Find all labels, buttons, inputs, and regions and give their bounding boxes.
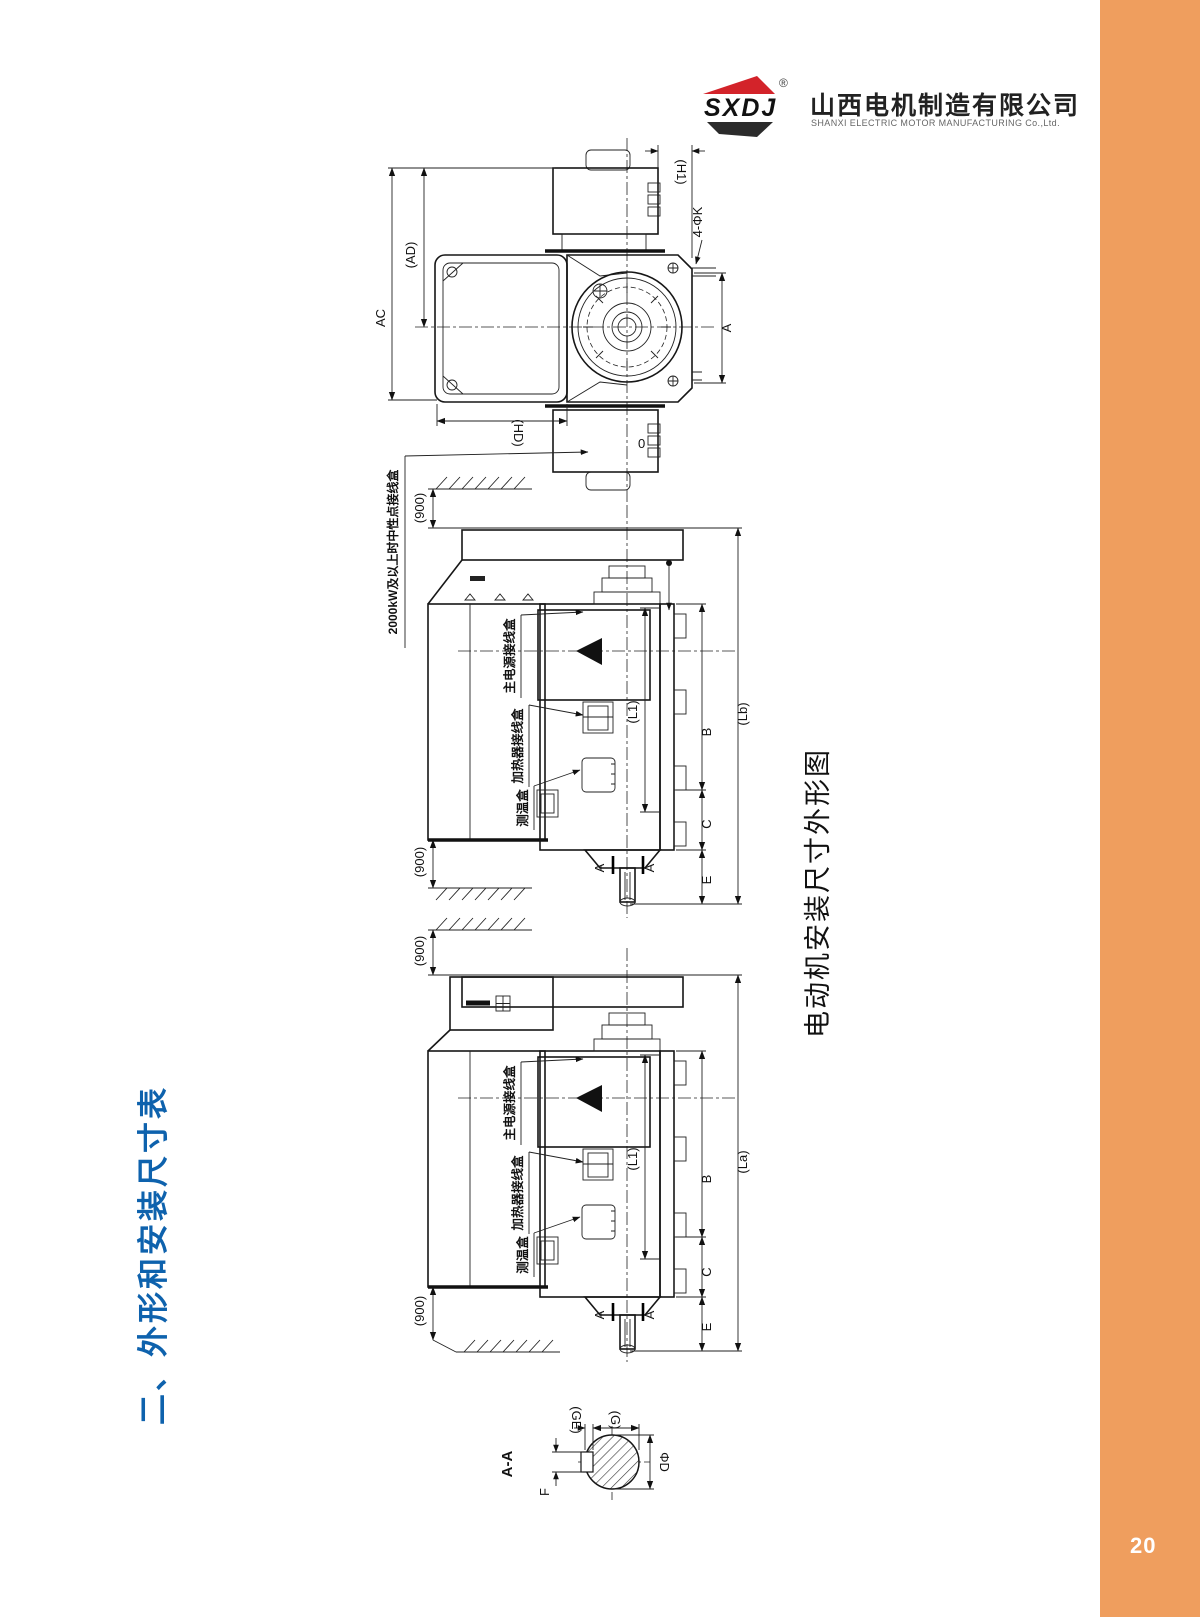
dim-f-label: F — [537, 1488, 552, 1496]
label-main-terminal-box: 主电源接线盒 — [502, 618, 517, 694]
dim-l1-label: (L1) — [625, 700, 640, 723]
dim-900-bottom-label: (900) — [412, 847, 427, 877]
dim-h1-label: (H1) — [674, 159, 689, 184]
dim-a-label: A — [719, 323, 734, 332]
section-cut-mark-a: A — [592, 863, 607, 872]
dim-zero-label: 0 — [638, 436, 645, 451]
side-view-lb-drawing: (900) 2000kW及以上时中性点接线盒 主电源接线盒 — [385, 452, 750, 918]
end-view-drawing: 0 AC (AD) (HD) (H1) 4-ΦK A — [373, 138, 734, 502]
label-heater-terminal-box: 加热器接线盒 — [510, 708, 525, 785]
dim-900-bottom-label: (900) — [412, 1296, 427, 1326]
dim-la-label: (La) — [735, 1150, 750, 1173]
side-view-la-drawing: (900) 主电源接线盒 — [412, 918, 750, 1362]
label-main-terminal-box: 主电源接线盒 — [502, 1065, 517, 1141]
section-cut-mark-a: A — [642, 863, 657, 872]
dim-900-top-label: (900) — [412, 493, 427, 523]
dim-b-label: B — [699, 728, 714, 737]
dim-ad-label: (AD) — [403, 242, 418, 269]
dim-c-label: C — [699, 819, 714, 828]
accent-sidebar — [1100, 0, 1200, 1617]
dim-c-label: C — [699, 1267, 714, 1276]
section-cut-mark-a: A — [592, 1310, 607, 1319]
dim-l1-label: (L1) — [625, 1147, 640, 1170]
dim-phi-d-label: ΦD — [657, 1452, 672, 1472]
dim-lb-label: (Lb) — [735, 702, 750, 725]
note-neutral-terminal-box: 2000kW及以上时中性点接线盒 — [385, 469, 400, 635]
label-temp-box: 测温盒 — [515, 1236, 530, 1274]
section-cut-mark-a: A — [642, 1310, 657, 1319]
label-heater-terminal-box: 加热器接线盒 — [510, 1155, 525, 1232]
section-aa-drawing: A-A (GE) (G) ΦD F — [499, 1406, 672, 1500]
label-temp-box: 测温盒 — [515, 789, 530, 827]
technical-drawing: 0 AC (AD) (HD) (H1) 4-ΦK A — [0, 0, 1100, 1617]
dim-e-label: E — [699, 1322, 714, 1331]
dim-ac-label: AC — [373, 309, 388, 327]
page-number: 20 — [1130, 1533, 1156, 1559]
dim-hd-label: (HD) — [511, 419, 526, 446]
dim-900-top-label: (900) — [412, 936, 427, 966]
dim-g-label: (G) — [608, 1411, 623, 1430]
dim-b-label: B — [699, 1175, 714, 1184]
dim-ge-label: (GE) — [569, 1406, 584, 1433]
dim-e-label: E — [699, 875, 714, 884]
section-aa-title: A-A — [499, 1451, 516, 1478]
document-page: 20 SXDJ ® 山西电机制造有限公司 SHANXI ELECTRIC MOT… — [0, 0, 1200, 1617]
dim-4-phi-k-label: 4-ΦK — [690, 206, 705, 237]
